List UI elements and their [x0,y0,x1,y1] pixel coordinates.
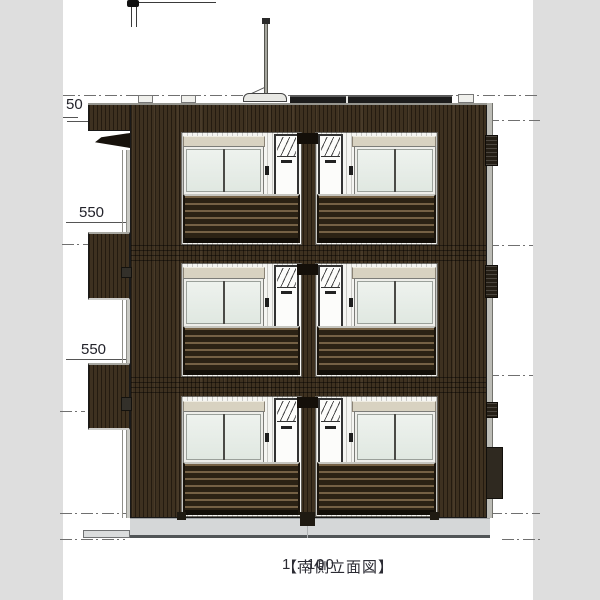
dim-floor3-leader [66,222,130,223]
dim-parapet-leader-1 [63,117,78,118]
balcony-railing [317,326,436,375]
roof-edge-line [88,103,487,105]
base-mark-center [300,512,315,526]
balcony-railing [183,462,300,514]
door-handle [281,426,291,429]
shutter-box [183,267,265,278]
window-pane-left [357,281,395,324]
window-pane-left [357,149,395,192]
column-bracket-3f [297,133,318,144]
door-handle [325,160,336,163]
dim-floor2-leader [66,359,130,360]
right-page-margin [533,0,600,600]
elevation-drawing-page: 50 550 550 [0,0,600,600]
ref-line-right-ground [490,513,540,514]
window-pane-right [395,414,433,460]
wall-vent-3f [485,135,498,166]
ref-line-left-ground [60,513,127,514]
window-mullion [223,281,225,324]
sliding-window [355,412,435,462]
pipe-clamp-upper [121,267,132,278]
antenna-base [243,93,287,102]
bay-3f-left [181,132,302,245]
window-mullion [223,414,225,460]
dimension-floor3: 550 [79,205,104,220]
window-pane-left [357,414,395,460]
roof-solar-panel-gap [346,96,348,103]
door-transom-window [321,137,340,157]
window-pane-right [224,281,261,324]
door-handle [325,426,336,429]
bay-3f-right [315,132,438,245]
gutter-bracket [95,133,130,148]
left-page-margin [0,0,63,600]
window-latch [349,298,353,307]
bay-2f-left [181,263,302,377]
window-pane-left [186,414,223,460]
wall-corner-strip [127,150,130,518]
door-transom-window [277,268,296,288]
shutter-box [352,136,435,147]
ref-line-left-floor3 [62,244,88,245]
door-transom-window [277,137,296,157]
ref-line-right-floor3 [487,245,533,246]
wall-vent-1f [486,402,498,418]
dim-parapet-leader-2 [67,121,88,122]
sliding-window [184,412,263,462]
ref-line-right-base [502,539,540,540]
window-mullion [223,149,225,192]
window-pane-right [395,149,433,192]
antenna-pole [264,21,268,102]
door-handle [281,291,291,294]
ref-line-left-base [60,539,125,540]
window-latch [349,433,353,442]
bay-1f-left [181,396,302,517]
caption-scale: 1 : 100 [282,556,335,573]
window-latch [265,433,269,442]
door-handle [281,160,291,163]
right-wall-seam [467,110,468,518]
base-mark-left [177,512,186,520]
window-mullion [394,414,396,460]
window-pane-right [224,414,261,460]
ref-line-right-parapet [487,120,540,121]
side-balcony-upper [88,232,130,300]
roof-vent-1 [138,95,153,103]
window-mullion [394,149,396,192]
window-pane-left [186,281,223,324]
door-transom-window [277,401,296,422]
roof-solar-panel [290,95,452,103]
column-bracket-2f [297,264,318,275]
column-bracket-1f [297,397,318,408]
ref-line-left-floor1 [60,411,85,412]
roof-vent-2 [181,95,196,103]
sliding-window [184,147,263,194]
floor-band-2f-1f [131,377,486,396]
bay-1f-right [315,396,438,517]
window-pane-right [224,149,261,192]
sliding-window [355,147,435,194]
sliding-window [184,279,263,326]
roof-vent-3 [458,94,474,103]
balcony-railing [317,194,436,243]
parapet-overhang [88,103,131,131]
wall-vent-2f [485,265,498,298]
window-latch [349,166,353,175]
window-latch [265,298,269,307]
window-latch [265,166,269,175]
ref-line-right-floor2 [487,375,533,376]
shutter-box [352,401,435,413]
balcony-railing [183,326,300,375]
sliding-window [355,279,435,326]
door-handle [325,291,336,294]
floor-band-3f-2f [131,245,486,263]
antenna-cap [262,18,270,24]
shutter-box [352,267,435,278]
bay-2f-right [315,263,438,377]
dimension-parapet: 50 [66,97,83,112]
door-transom-window [321,401,340,422]
pipe-clamp-lower [121,397,132,411]
entry-step [83,530,130,538]
window-pane-left [186,149,223,192]
shutter-box [183,136,265,147]
dimension-floor2: 550 [81,342,106,357]
shutter-box [183,401,265,413]
mast-joint-mark [127,0,139,7]
window-mullion [394,281,396,324]
balcony-railing [183,194,300,243]
mast-leader-line [131,2,216,3]
balcony-railing [317,462,436,514]
window-pane-right [395,281,433,324]
door-transom-window [321,268,340,288]
base-mark-right [430,512,439,520]
meter-box [486,447,503,499]
